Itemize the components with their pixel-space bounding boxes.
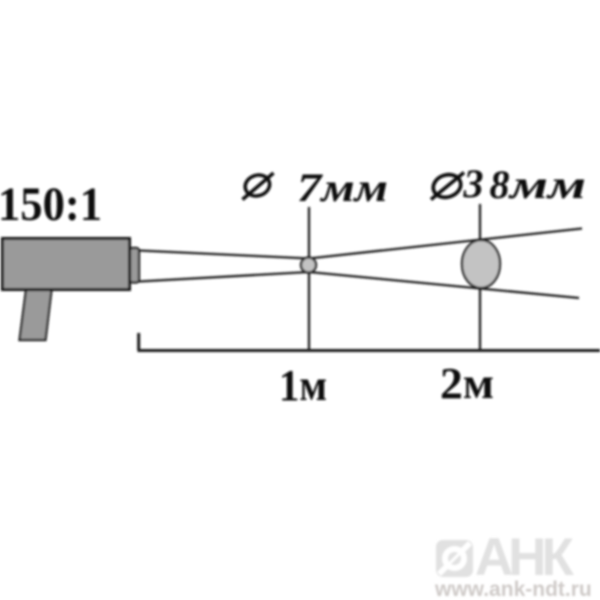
svg-text:мм: мм [507,162,586,207]
svg-text:3: 3 [463,161,484,206]
svg-text:www.ank-ndt.ru: www.ank-ndt.ru [434,578,592,600]
svg-text:8: 8 [490,162,510,207]
svg-text:1м: 1м [279,361,327,410]
svg-text:7мм: 7мм [297,165,388,210]
svg-text:150:1: 150:1 [0,178,102,231]
svg-text:2м: 2м [440,359,494,408]
